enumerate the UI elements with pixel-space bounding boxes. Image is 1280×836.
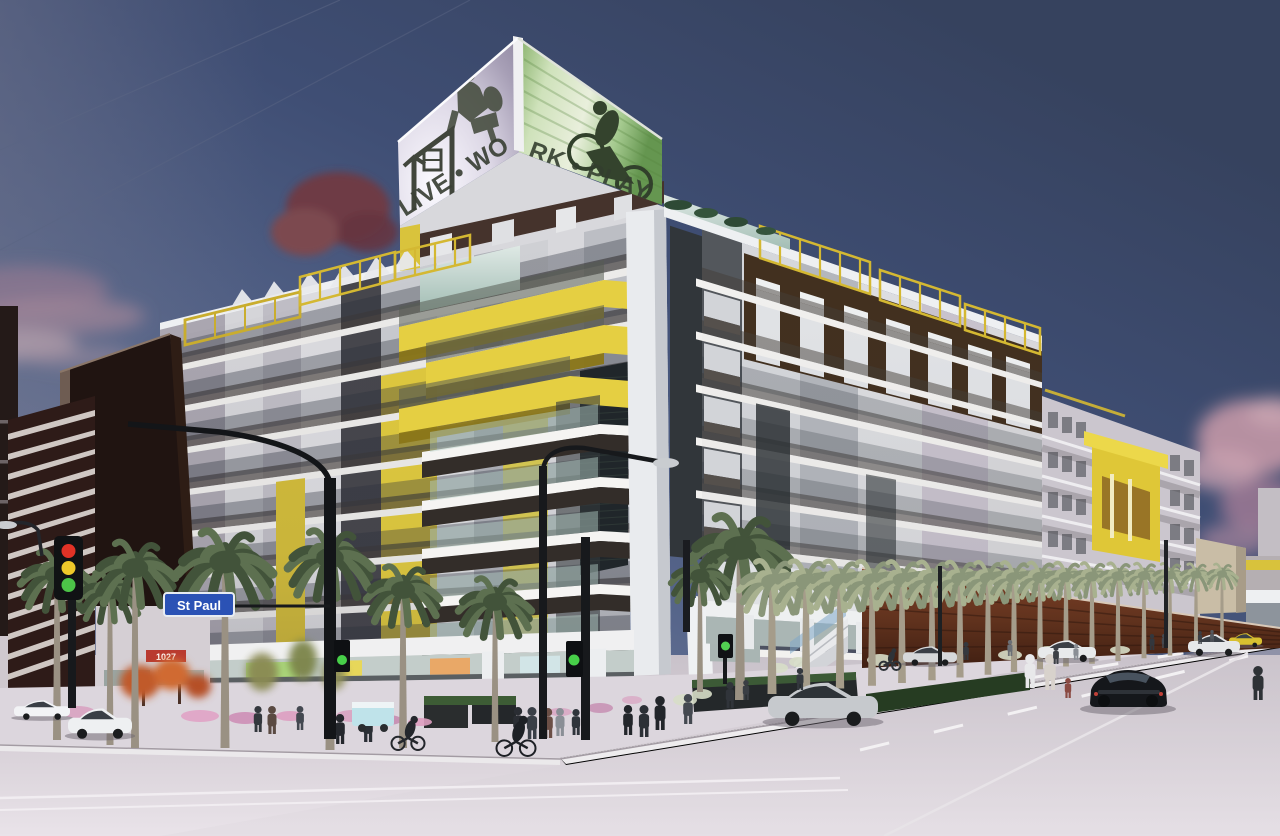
svg-text:St Paul: St Paul bbox=[177, 598, 221, 613]
